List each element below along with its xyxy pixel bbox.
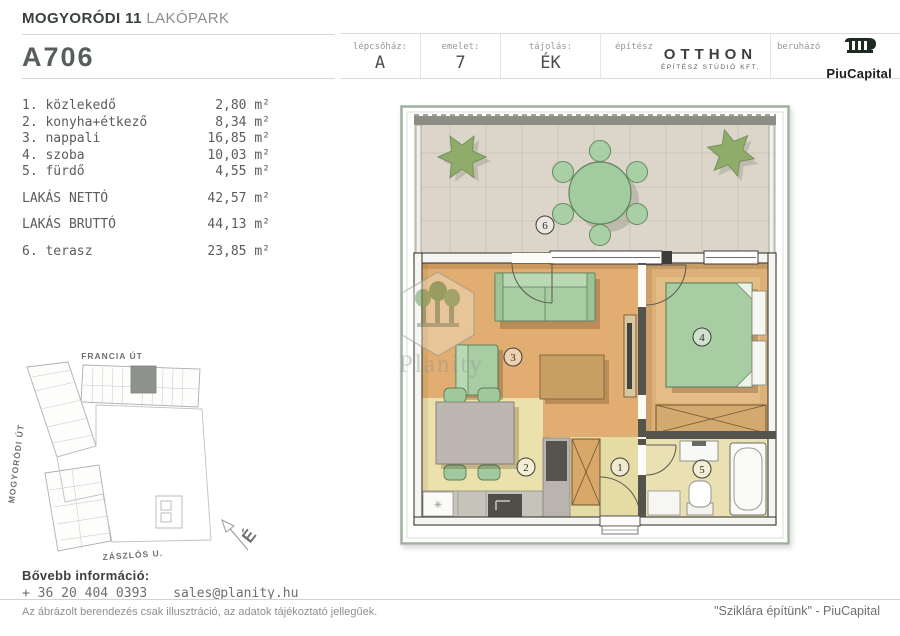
total-gross-row: LAKÁS BRUTTÓ 44,13 m² (22, 217, 270, 234)
total-gross-label: LAKÁS BRUTTÓ (22, 217, 116, 234)
footer-info-label: Bővebb információ: (22, 568, 298, 583)
street-label-top: FRANCIA ÚT (81, 350, 143, 361)
north-letter: É (238, 526, 260, 547)
staircase-cell: lépcsőház: A (340, 34, 420, 78)
room-row: 3. nappali 16,85 m² (22, 131, 270, 148)
hall-wardrobe-icon (572, 439, 600, 505)
project-title-block: MOGYORÓDI 11 LAKÓPARK (22, 10, 335, 27)
project-title: MOGYORÓDI 11 LAKÓPARK (22, 10, 335, 27)
room-name: nappali (45, 131, 100, 146)
terrace-row: 6. terasz 23,85 m² (22, 244, 270, 261)
site-highlight-unit (131, 366, 156, 393)
bathroom-sink-icon (680, 441, 718, 461)
floorplan-sheet: MOGYORÓDI 11 LAKÓPARK A706 lépcsőház: A … (0, 0, 900, 636)
terrace-door-opening (512, 253, 552, 263)
staircase-label: lépcsőház: (353, 42, 407, 52)
bath-door-opening (638, 445, 646, 475)
orientation-value: ÉK (540, 53, 560, 73)
room-name: konyha+étkező (45, 115, 147, 130)
terrace-area (414, 115, 776, 253)
unit-code-divider (22, 78, 335, 79)
room-label-bedroom: 4 (699, 332, 705, 344)
terrace-area: 23,85 (207, 244, 246, 259)
room-index: 1. (22, 98, 45, 113)
kitchen-tall-unit-icon (543, 438, 570, 517)
stove-icon (488, 494, 522, 517)
orientation-label: tájolás: (529, 42, 572, 52)
terrace-railing (414, 116, 776, 125)
total-net-row: LAKÁS NETTÓ 42,57 m² (22, 191, 270, 208)
architect-subtitle: ÉPÍTÉSZ STÚDIÓ KFT. (661, 64, 760, 71)
terrace-index: 6. (22, 244, 45, 259)
developer-name: PiuCapital (826, 66, 892, 81)
project-name: MOGYORÓDI 11 (22, 10, 142, 27)
bath-cabinet-icon (648, 491, 680, 515)
total-gross-unit: m² (247, 217, 270, 232)
room-name: szoba (45, 148, 84, 163)
pillow-icon (752, 341, 766, 385)
bedroom-door-opening (638, 265, 646, 307)
room-index: 3. (22, 131, 45, 146)
street-label-bottom: ZÁSZLÓS U. (102, 547, 163, 562)
footer-slogan: "Sziklára építünk" - PiuCapital (714, 604, 880, 618)
floor-label: emelet: (442, 42, 480, 52)
bedroom-wardrobe-icon (656, 405, 766, 433)
room-index: 4. (22, 148, 45, 163)
room-label-terrace: 6 (542, 220, 548, 232)
room-area: 4,55 (215, 164, 246, 179)
room-index: 5. (22, 164, 45, 179)
room-row: 1. közlekedő 2,80 m² (22, 98, 270, 115)
site-building-south (45, 465, 111, 551)
room-list: 1. közlekedő 2,80 m² 2. konyha+étkező 8,… (22, 98, 270, 260)
room-unit: m² (247, 115, 270, 130)
floor-cell: emelet: 7 (420, 34, 500, 78)
room-label-hall: 1 (617, 462, 623, 474)
project-name-suffix: LAKÓPARK (142, 10, 230, 27)
street-label-left: MOGYORÓDI ÚT (8, 423, 26, 503)
orientation-cell: tájolás: ÉK (500, 34, 600, 78)
room-area: 16,85 (207, 131, 246, 146)
fridge-symbol: ✳ (434, 500, 442, 511)
north-arrow-icon: É (222, 520, 260, 550)
architect-label: építész (615, 42, 653, 52)
architect-cell: építész OTTHON ÉPÍTÉSZ STÚDIÓ KFT. (600, 34, 770, 78)
room-area: 10,03 (207, 148, 246, 163)
unit-code: A706 (22, 42, 95, 73)
title-divider (22, 34, 335, 35)
room-row: 4. szoba 10,03 m² (22, 148, 270, 165)
architect-name: OTTHON (664, 46, 757, 64)
room-label-bath: 5 (699, 464, 705, 476)
room-label-kitchen: 2 (523, 462, 529, 474)
dining-set-icon (436, 388, 519, 480)
footer-info-block: Bővebb információ: + 36 20 404 0393sales… (22, 568, 298, 601)
room-unit: m² (247, 164, 270, 179)
total-net-label: LAKÁS NETTÓ (22, 191, 108, 208)
floor-plan: ✳ (400, 105, 790, 545)
site-map: FRANCIA ÚT MOGYORÓDI ÚT ZÁSZLÓS U. É (8, 344, 270, 566)
room-row: 2. konyha+étkező 8,34 m² (22, 115, 270, 132)
room-index: 2. (22, 115, 45, 130)
coffee-table-icon (540, 355, 609, 404)
entrance-opening (600, 516, 640, 526)
room-name: közlekedő (45, 98, 115, 113)
total-net-area: 42,57 (207, 191, 246, 206)
tv-console-icon (624, 315, 636, 397)
total-net-unit: m² (247, 191, 270, 206)
room-label-living: 3 (510, 352, 516, 364)
staircase-value: A (375, 53, 385, 73)
room-unit: m² (247, 148, 270, 163)
sofa-icon (495, 273, 600, 329)
developer-label: beruházó (777, 42, 820, 52)
terrace-name: terasz (45, 244, 92, 259)
developer-cell: beruházó PiuCapital (770, 34, 900, 78)
room-unit: m² (247, 98, 270, 113)
floor-value: 7 (455, 53, 465, 73)
room-unit: m² (247, 131, 270, 146)
kitchen-counter-icon: ✳ (422, 491, 543, 517)
piucapital-logo-icon (839, 36, 879, 66)
footer-divider (0, 599, 900, 600)
room-row: 5. fürdő 4,55 m² (22, 164, 270, 181)
bed-icon (666, 283, 766, 393)
unit-info-strip: lépcsőház: A emelet: 7 tájolás: ÉK építé… (340, 33, 900, 79)
toilet-icon (687, 481, 713, 515)
footer-disclaimer: Az ábrázolt berendezés csak illusztráció… (22, 606, 377, 618)
terrace-unit: m² (247, 244, 270, 259)
total-gross-area: 44,13 (207, 217, 246, 232)
room-area: 2,80 (215, 98, 246, 113)
bathtub-icon (730, 443, 766, 515)
pillow-icon (752, 291, 766, 335)
room-area: 8,34 (215, 115, 246, 130)
room-name: fürdő (45, 164, 84, 179)
